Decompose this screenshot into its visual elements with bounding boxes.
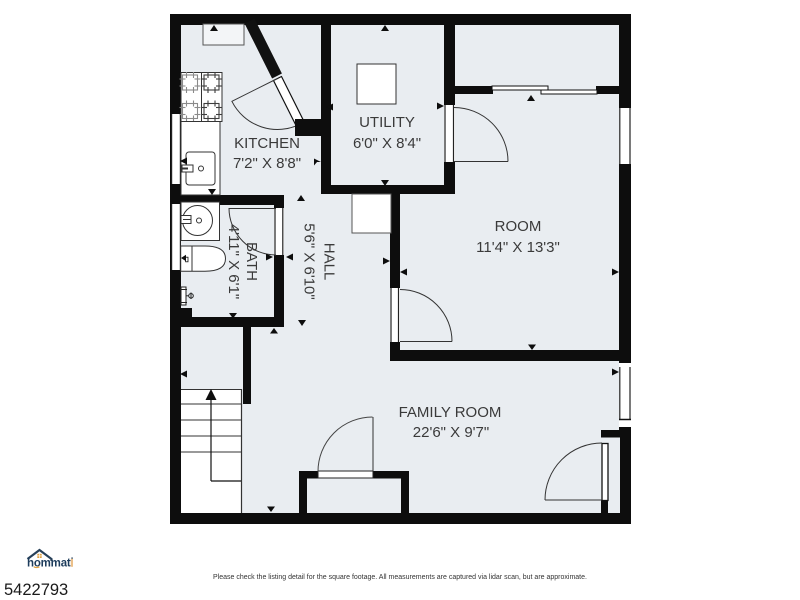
svg-text:5422793: 5422793 [4, 581, 68, 599]
svg-text:ROOM: ROOM [495, 218, 542, 235]
svg-text:KITCHEN: KITCHEN [234, 135, 300, 152]
svg-text:7'2" X 8'8": 7'2" X 8'8" [233, 155, 301, 172]
svg-text:UTILITY: UTILITY [359, 114, 415, 131]
svg-text:6'0" X 8'4": 6'0" X 8'4" [353, 135, 421, 152]
svg-text:22'6" X 9'7": 22'6" X 9'7" [413, 424, 489, 441]
svg-text:BATH: BATH [243, 242, 260, 281]
svg-text:FAMILY ROOM: FAMILY ROOM [399, 404, 502, 421]
svg-text:4'11" X 6'1": 4'11" X 6'1" [225, 224, 242, 299]
svg-text:11'4" X 13'3": 11'4" X 13'3" [476, 239, 560, 256]
svg-text:5'6" X 6'10": 5'6" X 6'10" [301, 223, 318, 299]
svg-text:hommati: hommati [27, 558, 74, 570]
svg-text:HALL: HALL [321, 243, 338, 281]
svg-text:Please check the listing detai: Please check the listing detail for the … [213, 574, 587, 581]
